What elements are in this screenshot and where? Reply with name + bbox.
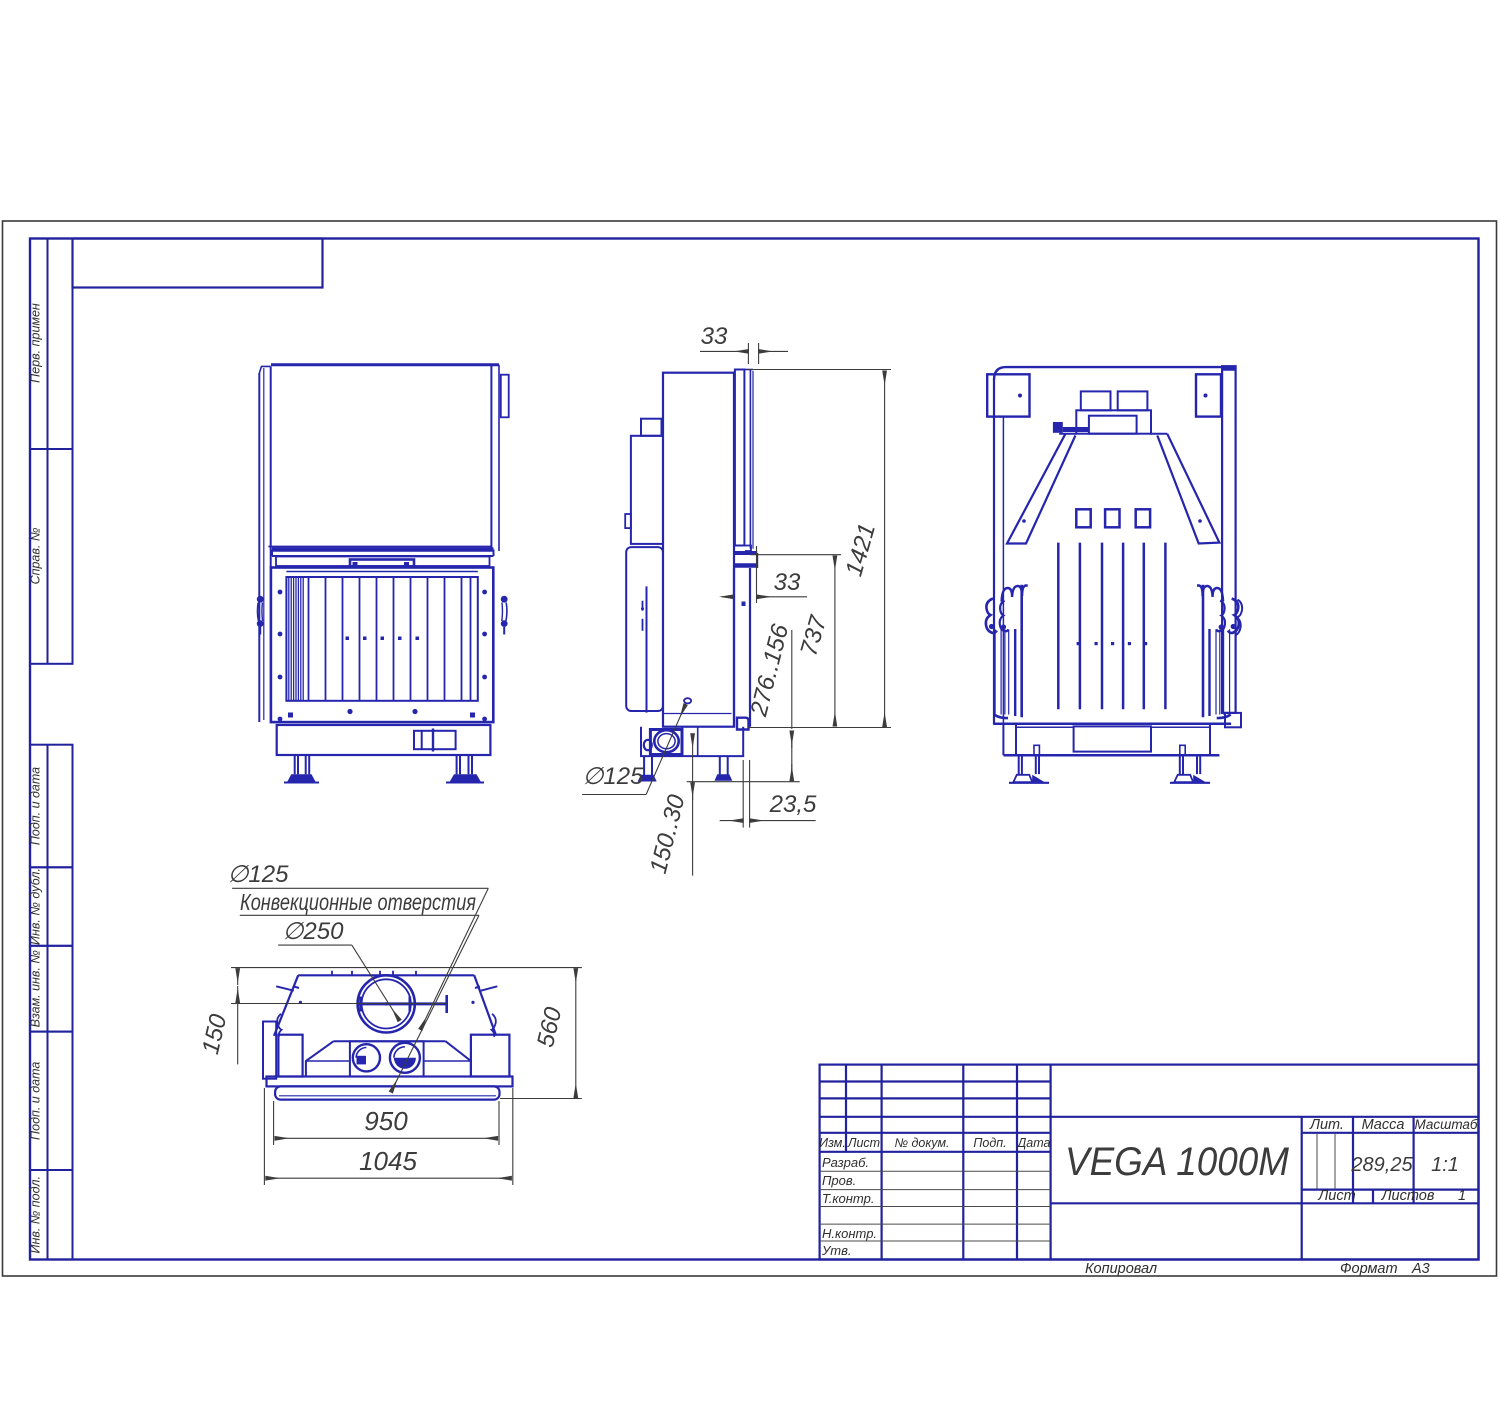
svg-text:Н.контр.: Н.контр. [822,1226,877,1241]
svg-text:Подп. и дата: Подп. и дата [29,767,43,845]
svg-text:Подп.: Подп. [973,1136,1006,1150]
svg-text:∅125: ∅125 [583,763,645,790]
svg-text:VEGA 1000M: VEGA 1000M [1065,1140,1290,1184]
svg-text:Изм.: Изм. [819,1136,846,1150]
svg-text:∅250: ∅250 [283,918,345,945]
svg-text:А3: А3 [1411,1261,1430,1277]
svg-text:Подп. и дата: Подп. и дата [29,1062,43,1140]
svg-text:Разраб.: Разраб. [822,1155,869,1170]
svg-text:Пров.: Пров. [822,1173,856,1188]
svg-text:Лист: Лист [1317,1188,1355,1204]
svg-text:Лист: Лист [847,1136,880,1150]
svg-text:Т.контр.: Т.контр. [822,1191,874,1206]
svg-text:№ докум.: № докум. [894,1136,949,1150]
svg-text:Конвекционные отверстия: Конвекционные отверстия [240,889,476,915]
svg-text:23,5: 23,5 [769,791,817,818]
svg-text:1:1: 1:1 [1431,1154,1459,1176]
svg-text:Лит.: Лит. [1309,1117,1344,1133]
svg-text:Масштаб: Масштаб [1414,1117,1477,1132]
svg-text:Формат: Формат [1340,1261,1398,1277]
svg-text:Масса: Масса [1362,1117,1405,1133]
svg-text:950: 950 [364,1106,408,1136]
svg-text:Инв. № подл.: Инв. № подл. [29,1176,43,1254]
svg-text:1045: 1045 [359,1146,417,1176]
svg-text:1: 1 [1458,1188,1466,1204]
svg-text:Копировал: Копировал [1085,1261,1157,1277]
svg-text:Перв. примен: Перв. примен [29,303,43,383]
svg-text:Листов: Листов [1381,1188,1435,1204]
svg-text:Дата: Дата [1016,1136,1051,1150]
svg-text:Инв. № дубл.: Инв. № дубл. [29,868,43,945]
svg-text:Взам. инв. №: Взам. инв. № [29,950,43,1028]
svg-text:33: 33 [701,323,728,350]
svg-text:Утв.: Утв. [821,1243,852,1258]
svg-text:289,25: 289,25 [1350,1154,1413,1176]
svg-text:Справ. №: Справ. № [29,527,43,584]
svg-text:∅125: ∅125 [228,861,290,888]
svg-text:33: 33 [774,569,801,596]
